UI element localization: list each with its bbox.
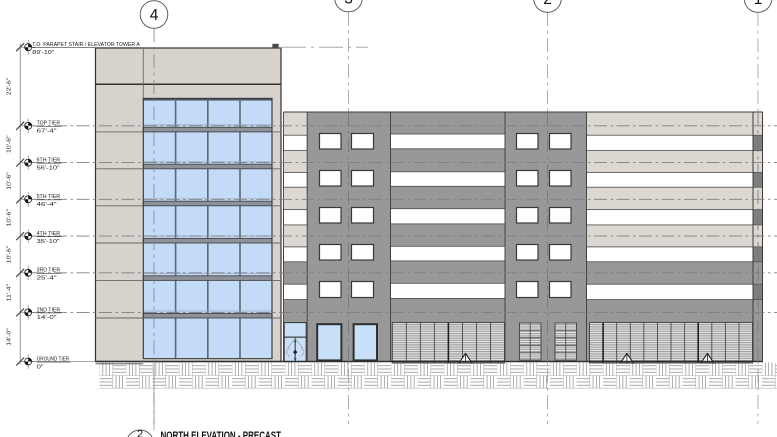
svg-text:10'-6": 10'-6" [7,246,13,264]
svg-text:6TH TIER: 6TH TIER [37,158,61,164]
svg-text:1: 1 [754,0,763,8]
svg-text:10'-6": 10'-6" [7,209,13,227]
svg-text:5TH TIER: 5TH TIER [37,194,61,200]
svg-text:14'-0": 14'-0" [37,315,57,321]
svg-text:89'-10": 89'-10" [32,50,54,56]
svg-text:3RD TIER: 3RD TIER [37,268,61,274]
svg-text:11'-4": 11'-4" [7,284,13,302]
svg-text:4: 4 [150,7,159,24]
svg-text:NORTH ELEVATION - PRECAST: NORTH ELEVATION - PRECAST [161,430,282,437]
svg-text:0": 0" [37,364,44,370]
svg-text:TOP TIER: TOP TIER [37,121,61,127]
svg-text:46'-4": 46'-4" [37,202,57,208]
svg-text:10'-6": 10'-6" [7,135,13,153]
svg-text:GROUND TIER: GROUND TIER [37,356,70,362]
svg-text:T.O. PARAPET STAIR / ELEVATOR: T.O. PARAPET STAIR / ELEVATOR TOWER A [32,42,140,48]
svg-text:35'-10": 35'-10" [37,239,60,245]
svg-text:2: 2 [543,0,552,8]
svg-text:2ND TIER: 2ND TIER [37,307,61,313]
svg-text:25'-4": 25'-4" [37,276,57,282]
svg-text:67'-4": 67'-4" [37,129,57,135]
svg-text:10'-6": 10'-6" [7,172,13,190]
svg-text:2: 2 [137,429,143,437]
svg-text:4TH TIER: 4TH TIER [37,231,61,237]
svg-text:14'-0": 14'-0" [7,328,13,346]
svg-text:56'-10": 56'-10" [37,165,60,171]
svg-text:22'-6": 22'-6" [7,78,13,96]
svg-text:3: 3 [344,0,353,7]
